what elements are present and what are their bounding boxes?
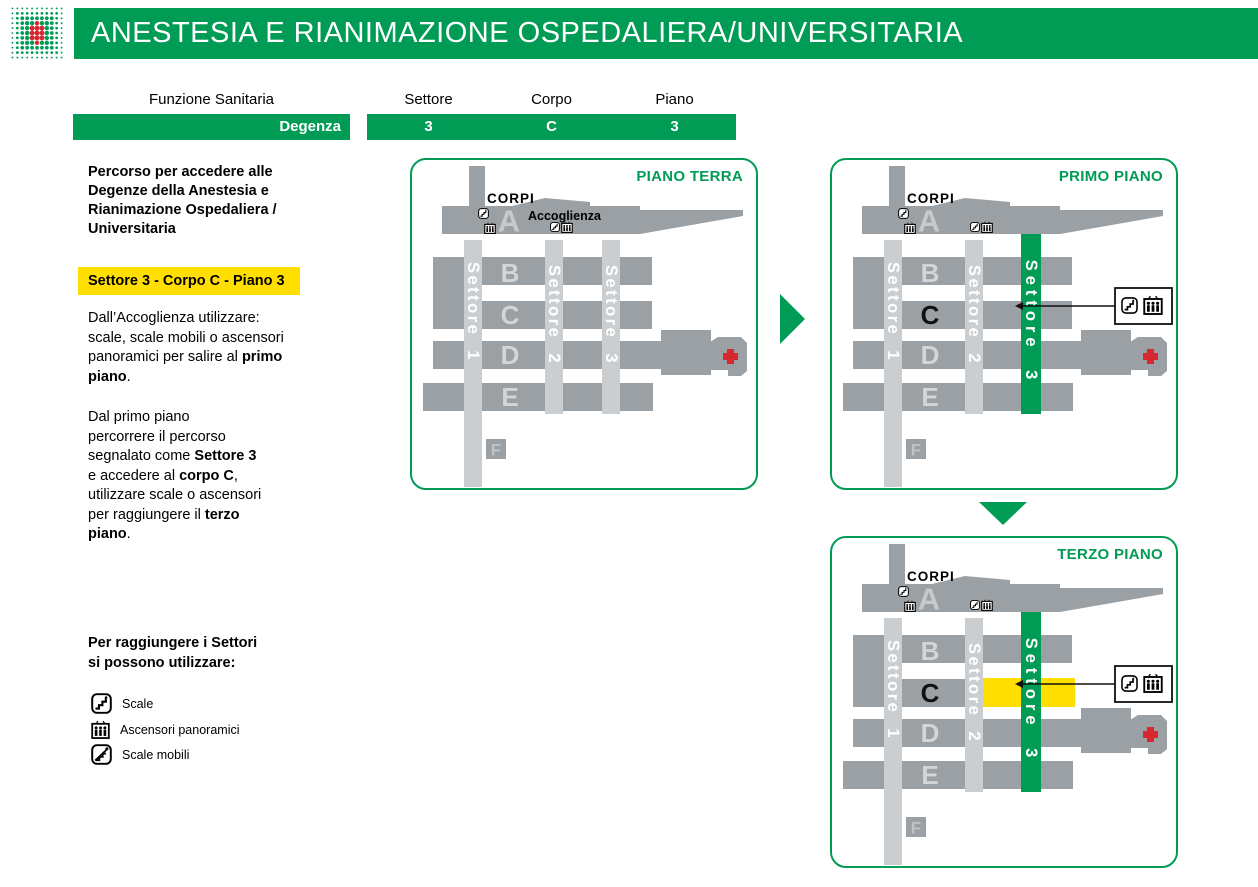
corpi-label: CORPI <box>487 191 535 206</box>
red-cross-icon <box>723 353 738 360</box>
corpo-b-label: B <box>501 258 520 288</box>
corpo-c-label: C <box>921 678 940 708</box>
stairs-icon <box>899 587 909 597</box>
instructions-paragraph-2: Dal primo pianopercorrere il percorsoseg… <box>88 408 261 545</box>
legend-label: Scale <box>122 697 153 711</box>
legend-label: Ascensori panoramici <box>120 723 240 737</box>
hospital-logo <box>8 4 66 62</box>
corpi-label: CORPI <box>907 191 955 206</box>
corpo-c-label: C <box>921 300 940 330</box>
legend-item-scale-mobili: Scale mobili <box>91 744 189 765</box>
building-stub <box>469 166 485 212</box>
next-floor-arrow-right <box>780 294 805 344</box>
column-header-settore: Settore <box>367 91 490 108</box>
corpo-f-label: F <box>911 819 921 838</box>
route-values-bar: 3C3 <box>367 114 736 140</box>
corpo-d-extension <box>661 330 711 375</box>
corpo-c-label: C <box>501 300 520 330</box>
funzione-value-cell: Degenza <box>73 114 350 140</box>
corpo-d-extension <box>1081 330 1131 375</box>
corpo-d-label: D <box>921 718 940 748</box>
stairs-icon <box>551 223 560 232</box>
sector-3-label: Settore 3 <box>1022 638 1040 763</box>
panel-title: PRIMO PIANO <box>1059 168 1163 185</box>
sector-2-label: Settore 2 <box>965 643 983 743</box>
corpi-label: CORPI <box>907 569 955 584</box>
page-title: ANESTESIA E RIANIMAZIONE OSPEDALIERA/UNI… <box>91 17 963 49</box>
corpo-e-label: E <box>921 760 938 790</box>
red-cross-icon <box>1143 353 1158 360</box>
panoramic-elevator-icon <box>1144 296 1162 314</box>
panoramic-elevator-icon <box>485 223 496 234</box>
page: ANESTESIA E RIANIMAZIONE OSPEDALIERA/UNI… <box>0 0 1258 887</box>
sector-1-label: Settore 1 <box>884 640 902 740</box>
stairs-icon <box>1122 676 1137 691</box>
map-panel-primo-piano: PRIMO PIANO F Settore 1 Settore 2 Settor… <box>830 158 1178 490</box>
sector-1-label: Settore 1 <box>884 262 902 362</box>
building-stub <box>889 544 905 590</box>
corpo-value: C <box>490 114 613 140</box>
column-header-funzione: Funzione Sanitaria <box>73 91 350 108</box>
sector-1-label: Settore 1 <box>464 262 482 362</box>
panoramic-elevator-icon <box>905 223 916 234</box>
settore-value: 3 <box>367 114 490 140</box>
instructions-paragraph-1: Dall’Accoglienza utilizzare:scale, scale… <box>88 309 284 387</box>
sector-2-label: Settore 2 <box>545 265 563 365</box>
page-title-bar: ANESTESIA E RIANIMAZIONE OSPEDALIERA/UNI… <box>74 8 1258 59</box>
corpo-a-label: A <box>918 204 940 239</box>
map-panel-piano-terra: PIANO TERRA F Settore 1 Settore 2 Settor… <box>410 158 758 490</box>
destination-highlight: Settore 3 - Corpo C - Piano 3 <box>78 267 300 295</box>
corpo-d-label: D <box>501 340 520 370</box>
corpo-b-label: B <box>921 258 940 288</box>
red-cross-icon <box>1143 731 1158 738</box>
legend-item-scale: Scale <box>91 693 153 714</box>
panel-title: PIANO TERRA <box>636 168 743 185</box>
stairs-icon <box>91 693 112 714</box>
corpo-e-label: E <box>921 382 938 412</box>
legend-title: Per raggiungere i Settori si possono uti… <box>88 633 257 673</box>
map-panel-terzo-piano: TERZO PIANO F Settore 1 Settore 2 Settor… <box>830 536 1178 868</box>
panoramic-elevator-icon <box>982 600 993 611</box>
corpo-d-extension <box>1081 708 1131 753</box>
panoramic-elevator-icon <box>982 222 993 233</box>
corpo-a-label: A <box>498 204 520 239</box>
corpo-e-label: E <box>501 382 518 412</box>
panoramic-elevator-icon <box>562 222 573 233</box>
stairs-icon <box>479 209 489 219</box>
sector-3-label: Settore 3 <box>1022 260 1040 385</box>
stairs-icon <box>1122 298 1137 313</box>
next-floor-arrow-down <box>979 502 1027 525</box>
panoramic-elevator-icon <box>905 601 916 612</box>
panel-title: TERZO PIANO <box>1057 546 1163 563</box>
corpo-f-label: F <box>911 441 921 460</box>
sector-3-label: Settore 3 <box>602 265 620 365</box>
corpo-a-label: A <box>918 582 940 617</box>
panoramic-elevator-icon <box>1144 674 1162 692</box>
corpo-b-label: B <box>921 636 940 666</box>
escalator-icon <box>91 744 112 765</box>
column-header-piano: Piano <box>613 91 736 108</box>
corpo-f-label: F <box>491 441 501 460</box>
route-intro-text: Percorso per accedere alle Degenze della… <box>88 163 277 239</box>
stairs-icon <box>971 223 980 232</box>
legend-label: Scale mobili <box>122 748 189 762</box>
stairs-icon <box>971 601 980 610</box>
panoramic-elevator-icon <box>91 720 110 739</box>
piano-value: 3 <box>613 114 736 140</box>
stairs-icon <box>899 209 909 219</box>
building-stub <box>889 166 905 212</box>
column-header-corpo: Corpo <box>490 91 613 108</box>
legend-item-ascensori: Ascensori panoramici <box>91 720 240 739</box>
sector-2-label: Settore 2 <box>965 265 983 365</box>
corpo-d-label: D <box>921 340 940 370</box>
accoglienza-label: Accoglienza <box>528 209 602 223</box>
